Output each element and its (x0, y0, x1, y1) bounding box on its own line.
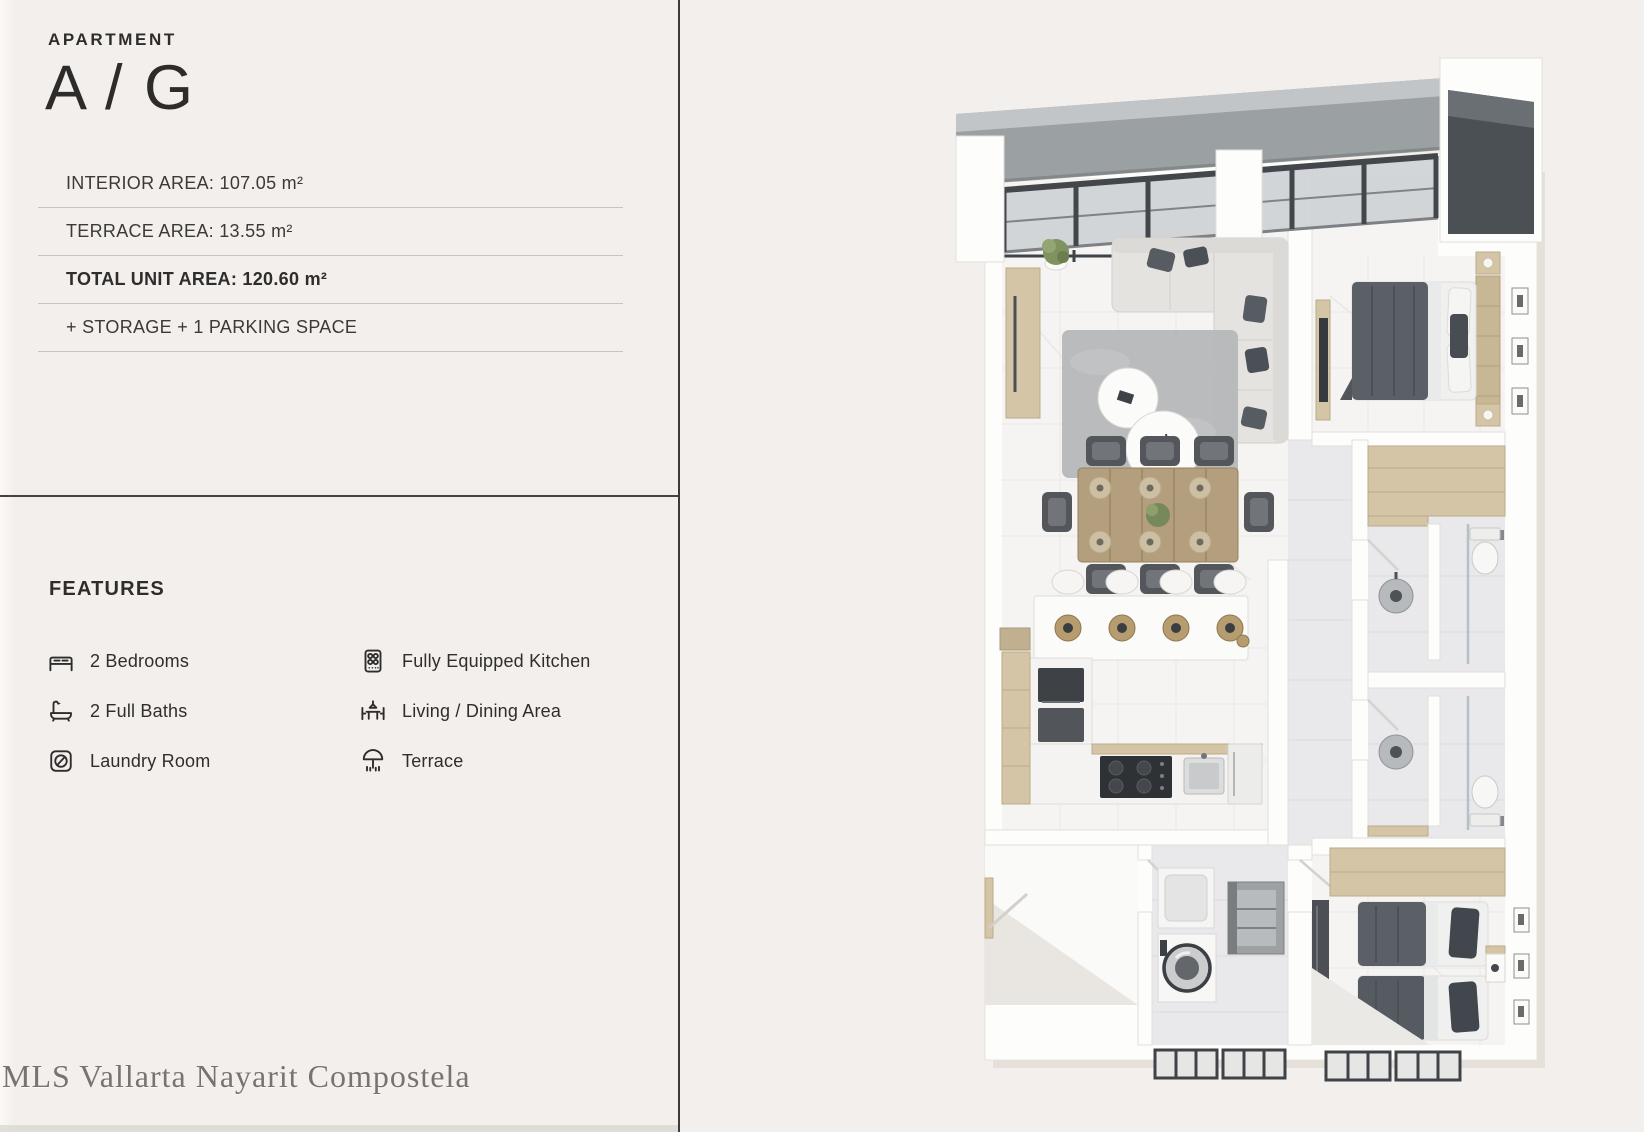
terrace-pergola (956, 78, 1444, 262)
storage-racks (1155, 1050, 1460, 1080)
feature-item-terrace: Terrace (358, 745, 658, 777)
laundry-shelf (1228, 882, 1284, 954)
features-column-left: 2 Bedrooms 2 Full Baths (46, 645, 346, 795)
dining-area (1042, 436, 1274, 594)
watermark: MLS Vallarta Nayarit Compostela (2, 1058, 471, 1095)
features-heading: FEATURES (49, 578, 165, 601)
bathroom-2 (1368, 696, 1504, 836)
feature-item-bedrooms: 2 Bedrooms (46, 645, 346, 677)
building-core-block (1440, 58, 1542, 242)
stove (1100, 756, 1172, 798)
feature-item-laundry: Laundry Room (46, 745, 346, 777)
living-room (1006, 238, 1288, 485)
spec-row-interior: INTERIOR AREA: 107.05 m² (38, 160, 623, 208)
feature-label: Living / Dining Area (402, 701, 561, 722)
kitchen-sink (1184, 753, 1224, 794)
feature-item-kitchen: Fully Equipped Kitchen (358, 645, 658, 677)
master-bedroom (1316, 252, 1528, 426)
dining-icon (358, 696, 388, 726)
rug-and-coffee-tables (1062, 330, 1238, 485)
entry-foyer (985, 878, 1138, 1005)
bathroom-1 (1368, 516, 1504, 664)
spec-row-extras: + STORAGE + 1 PARKING SPACE (38, 304, 623, 352)
spec-text: TOTAL UNIT AREA: 120.60 m² (66, 269, 327, 289)
sliding-glass-doors (1002, 250, 1288, 262)
spec-row-total: TOTAL UNIT AREA: 120.60 m² (38, 256, 623, 304)
feature-item-baths: 2 Full Baths (46, 695, 346, 727)
master-bed (1340, 282, 1476, 400)
interior-walls (985, 165, 1505, 1045)
wall-frames (1512, 288, 1528, 414)
spec-row-terrace: TERRACE AREA: 13.55 m² (38, 208, 623, 256)
area-specs: INTERIOR AREA: 107.05 m² TERRACE AREA: 1… (38, 160, 623, 352)
apartment-label: APARTMENT (48, 30, 177, 50)
terrace-icon (358, 746, 388, 776)
sofa (1112, 238, 1288, 443)
feature-label: Laundry Room (90, 751, 210, 772)
photo-edge-strip (0, 1125, 679, 1132)
stove-icon (358, 646, 388, 676)
spec-text: + STORAGE + 1 PARKING SPACE (66, 317, 357, 337)
feature-label: 2 Full Baths (90, 701, 187, 722)
bathrooms (1368, 446, 1505, 836)
laundry-room (1158, 868, 1284, 1002)
apartment-title: A / G (45, 54, 195, 123)
apartment-spec-sheet: APARTMENT A / G INTERIOR AREA: 107.05 m²… (0, 0, 1644, 1132)
panel-divider (678, 0, 680, 1132)
twin-bed-1 (1358, 902, 1488, 966)
second-bedroom (1312, 848, 1529, 1045)
washing-machine (1158, 934, 1216, 1002)
twin-bed-2 (1358, 976, 1488, 1040)
laundry-icon (46, 746, 76, 776)
feature-label: Terrace (402, 751, 463, 772)
feature-item-living-dining: Living / Dining Area (358, 695, 658, 727)
section-divider (0, 495, 679, 497)
floors (985, 178, 1505, 1045)
bed-icon (46, 646, 76, 676)
pendant-lights (1055, 615, 1249, 647)
feature-label: Fully Equipped Kitchen (402, 651, 591, 672)
feature-label: 2 Bedrooms (90, 651, 189, 672)
features-column-right: Fully Equipped Kitchen Living / Dining A… (358, 645, 658, 795)
spec-text: TERRACE AREA: 13.55 m² (66, 221, 293, 241)
info-panel: APARTMENT A / G INTERIOR AREA: 107.05 m²… (0, 0, 679, 1132)
kitchen (1000, 570, 1262, 804)
bathtub-icon (46, 696, 76, 726)
floor-tile-lines (1002, 256, 1505, 1045)
spec-text: INTERIOR AREA: 107.05 m² (66, 173, 303, 193)
